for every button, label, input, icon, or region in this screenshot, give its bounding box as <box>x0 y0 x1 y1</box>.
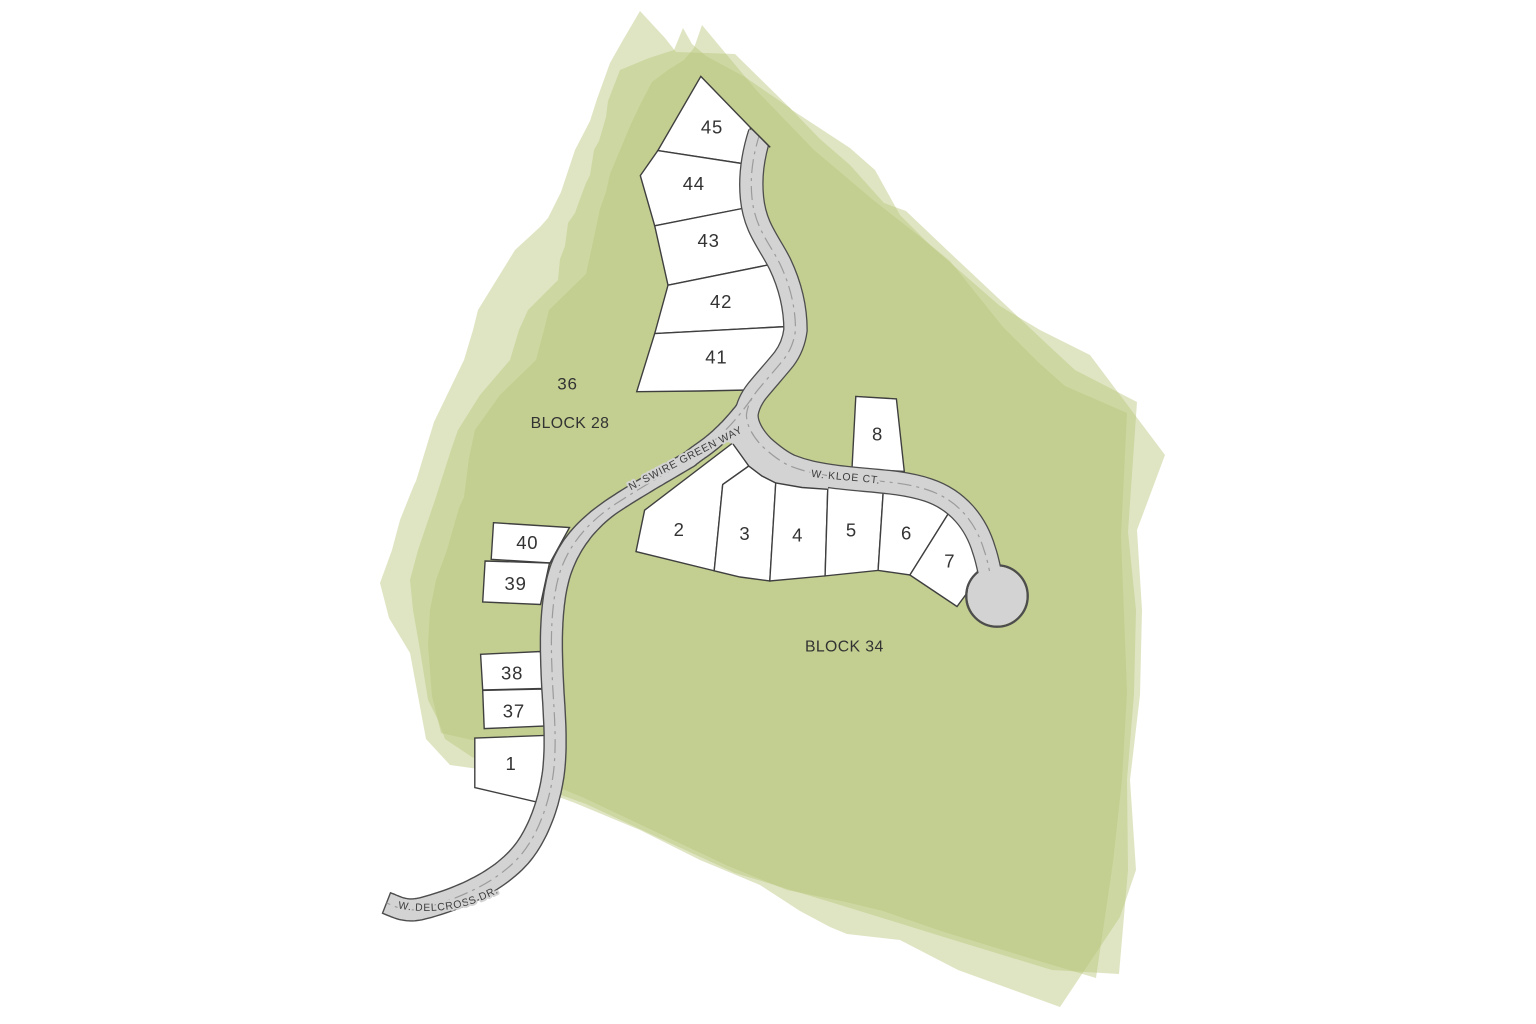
svg-text:BLOCK 34: BLOCK 34 <box>805 639 884 656</box>
svg-text:5: 5 <box>846 520 857 541</box>
svg-text:40: 40 <box>516 532 538 553</box>
svg-text:3: 3 <box>739 523 750 544</box>
svg-text:BLOCK 28: BLOCK 28 <box>531 415 610 432</box>
svg-text:37: 37 <box>503 701 525 722</box>
svg-text:1: 1 <box>506 753 517 774</box>
svg-text:45: 45 <box>701 117 723 138</box>
svg-text:7: 7 <box>944 551 955 572</box>
svg-text:6: 6 <box>901 523 912 544</box>
svg-text:8: 8 <box>872 424 883 445</box>
svg-text:39: 39 <box>505 573 527 594</box>
svg-text:43: 43 <box>698 230 720 251</box>
svg-text:41: 41 <box>705 347 727 368</box>
svg-text:36: 36 <box>557 375 578 394</box>
svg-text:38: 38 <box>501 663 523 684</box>
svg-text:44: 44 <box>683 173 705 194</box>
svg-text:4: 4 <box>792 525 803 546</box>
svg-text:42: 42 <box>710 291 732 312</box>
svg-text:2: 2 <box>674 519 685 540</box>
